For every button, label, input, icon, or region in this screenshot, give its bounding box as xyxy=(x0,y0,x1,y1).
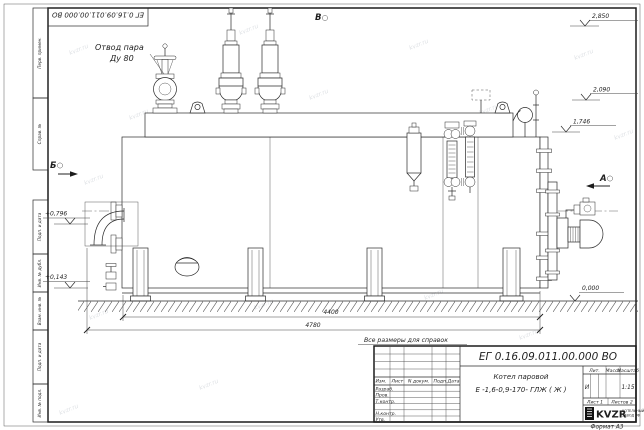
col-date: Дата xyxy=(447,379,460,385)
sheets-total: Листов 2 xyxy=(610,400,633,406)
company-line1: КОТЕЛЬНЫЙ xyxy=(622,408,644,413)
titleblock-name-line1: Котел паровой xyxy=(494,373,549,381)
watermark-text: kvzr.ru xyxy=(613,128,635,142)
col-izm: Изм. xyxy=(376,379,387,385)
lifting-lug xyxy=(190,102,205,113)
watermark-text: kvzr.ru xyxy=(408,38,430,52)
safety-valve xyxy=(255,8,285,113)
steam-outlet-label: Отвод пара xyxy=(95,43,144,52)
col-sign: Подп. xyxy=(434,379,448,385)
side-strip-label: Подп. и дата xyxy=(37,212,42,241)
dimension-text: 4780 xyxy=(305,322,320,329)
drawing-sheet: kvzr.ru kvzr.ru kvzr.ru kvzr.ru kvzr.ru … xyxy=(0,0,644,430)
burner-assembly xyxy=(546,182,604,280)
elevation-text: 1,746 xyxy=(573,119,590,126)
siphon-loop xyxy=(518,108,533,123)
row-razrab: Разраб. xyxy=(376,387,394,393)
title-block: ЕГ 0.16.09.011.00.000 ВО Котел паровой Е… xyxy=(374,346,644,430)
view-v-text: В xyxy=(315,13,321,23)
elevation-text: 0,000 xyxy=(582,285,599,292)
watermark-text: kvzr.ru xyxy=(573,48,595,62)
watermark-text: kvzr.ru xyxy=(198,378,220,392)
watermark-text: kvzr.ru xyxy=(83,173,105,187)
elevation-text: 2,090 xyxy=(593,87,610,94)
side-strip-label: Подп. и дата xyxy=(37,342,42,371)
steam-outlet-valve xyxy=(153,44,177,113)
elevation-mark: 0,000 xyxy=(570,285,624,301)
view-a-text: А xyxy=(599,174,607,184)
elevation-mark: 1,746 xyxy=(552,119,616,133)
elevation-mark: 2,090 xyxy=(572,87,638,101)
lit-label: Лит. xyxy=(588,368,600,374)
side-strip-label: Справ. № xyxy=(37,123,42,144)
doc-number-stamp-text: ЕГ 0.16.09.011.00.000 ВО xyxy=(51,11,144,19)
elevation-mark: +0,143 xyxy=(43,274,90,288)
lit-value: И xyxy=(585,385,590,391)
titleblock-name-line2: Е -1,6-0,9-170- ГЛЖ ( Ж ) xyxy=(476,386,567,394)
watermark-text: kvzr.ru xyxy=(68,43,90,57)
view-label-b: Б xyxy=(50,161,78,177)
row-nkontr: Н.контр. xyxy=(376,411,397,417)
side-strip-label: Инв. № дубл. xyxy=(37,259,42,288)
elevation-mark: +0,796 xyxy=(43,211,90,225)
elevation-text: +0,796 xyxy=(45,211,67,218)
steam-outlet-size-label: Ду 80 xyxy=(109,54,134,63)
elevation-mark: 2,850 xyxy=(570,13,638,26)
col-list: Лист xyxy=(391,379,404,385)
col-doc: N докум. xyxy=(408,379,429,385)
format-label: Формат А3 xyxy=(590,425,623,430)
dimension-text: 4400 xyxy=(323,309,338,316)
elevation-text: +0,143 xyxy=(45,274,67,281)
watermark-text: kvzr.ru xyxy=(308,88,330,102)
titleblock-doc-number: ЕГ 0.16.09.011.00.000 ВО xyxy=(479,351,617,363)
scale-label: Масштаб xyxy=(617,368,639,374)
manhole xyxy=(175,258,199,277)
scale-value: 1:15 xyxy=(621,385,634,391)
row-utv: Утв. xyxy=(376,417,386,423)
view-b-text: Б xyxy=(50,161,57,171)
side-strip-label: Перв. примен. xyxy=(37,37,42,68)
watermark-text: kvzr.ru xyxy=(58,403,80,417)
manufacturer-logo: KVZR КОТЕЛЬНЫЙ ЗАВОД РФ xyxy=(585,407,644,421)
view-label-v: В xyxy=(315,13,328,23)
row-tkontr: Т.контр. xyxy=(376,399,396,405)
safety-valve xyxy=(216,8,246,113)
boiler-view xyxy=(78,8,638,313)
view-label-a: А xyxy=(586,174,613,189)
watermark-text: kvzr.ru xyxy=(423,288,445,302)
sheet-number: Лист 1 xyxy=(586,400,603,406)
side-strip-label: Инв. № подл. xyxy=(37,389,42,418)
ground xyxy=(78,301,638,313)
doc-number-stamp: ЕГ 0.16.09.011.00.000 ВО xyxy=(48,8,148,26)
side-strip-label: Взам. инв. № xyxy=(37,296,42,325)
company-line2: ЗАВОД РФ xyxy=(622,414,640,418)
burner-motor xyxy=(580,220,603,248)
watermark-text: kvzr.ru xyxy=(238,23,260,37)
boiler-drawing-svg: kvzr.ru kvzr.ru kvzr.ru kvzr.ru kvzr.ru … xyxy=(0,0,644,430)
reference-note: Все размеры для справок xyxy=(364,337,448,344)
elevation-text: 2,850 xyxy=(592,13,609,20)
row-prov: Пров. xyxy=(376,393,389,399)
